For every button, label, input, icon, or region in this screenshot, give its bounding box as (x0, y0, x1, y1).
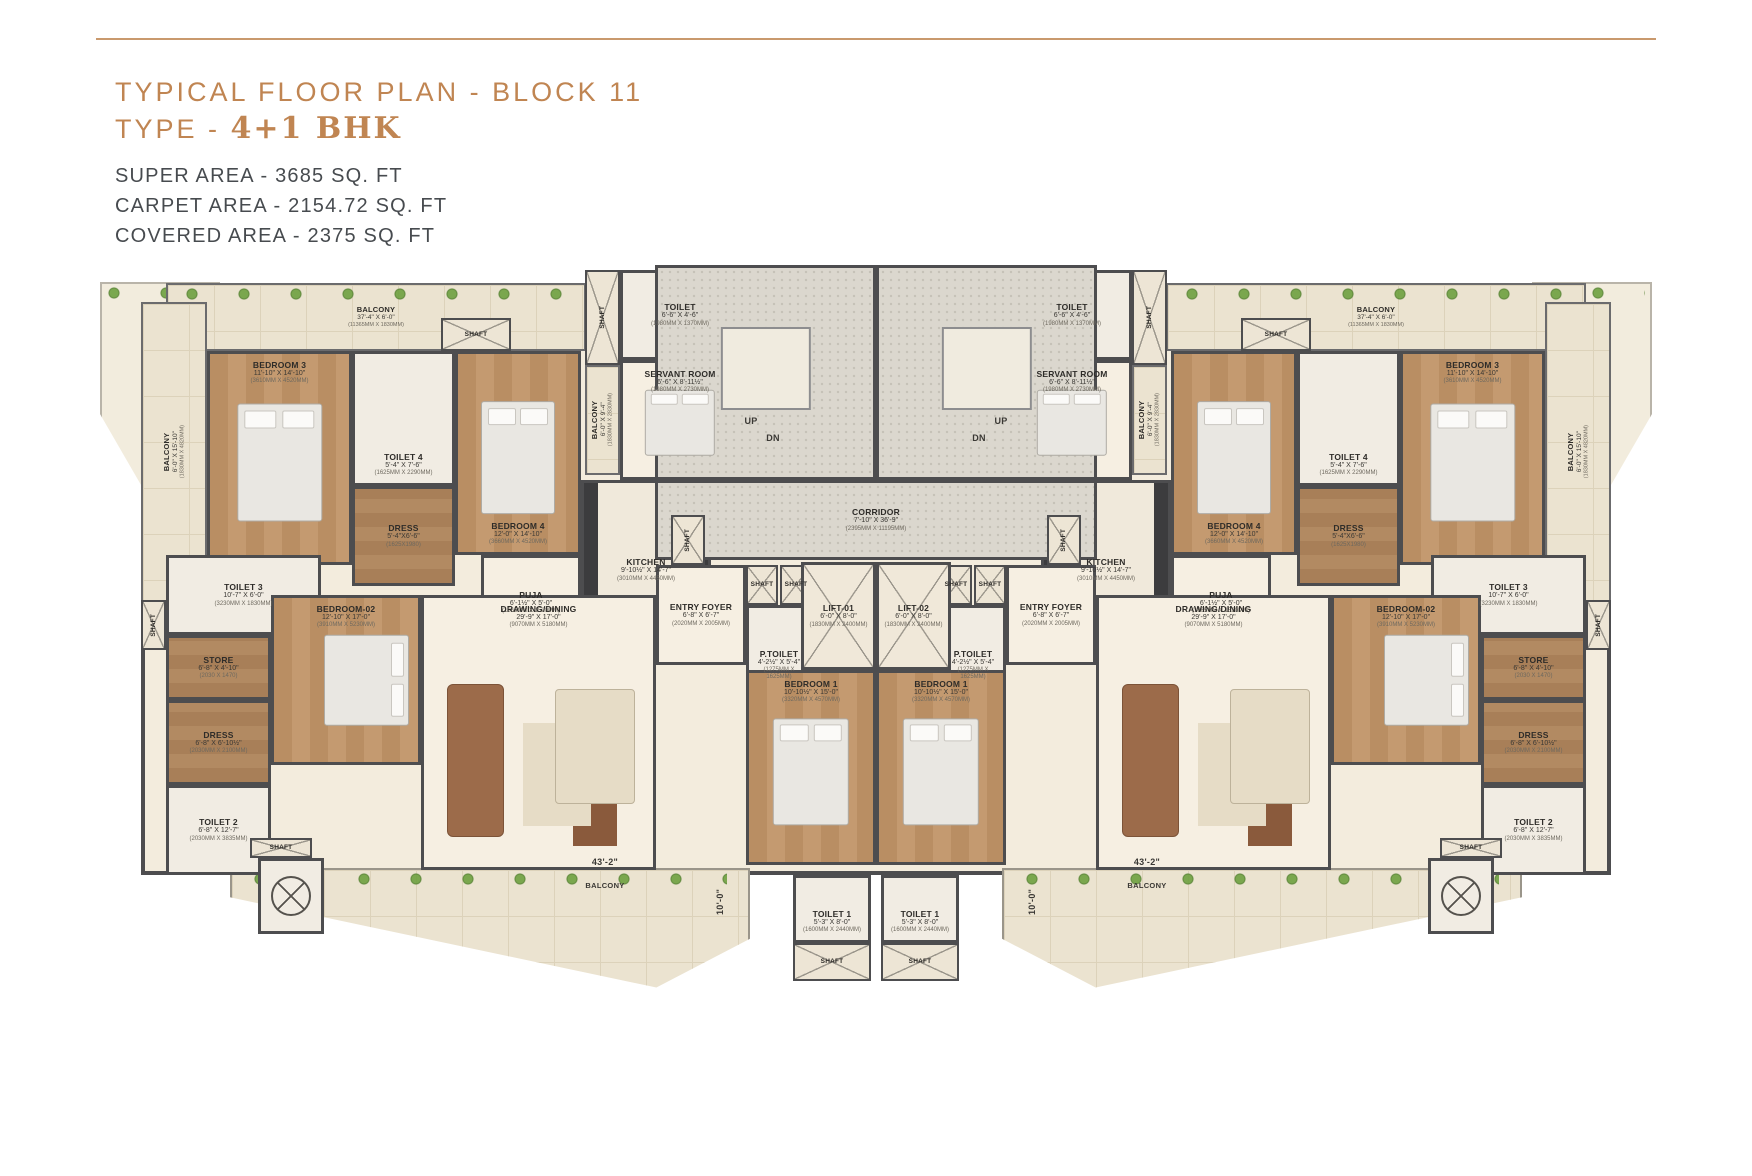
note-stair-up-left: UP (736, 414, 766, 428)
servant-shaft-label: SHAFT (597, 305, 609, 330)
washing-machine-icon (1441, 876, 1481, 916)
room-shaft-washer-left: SHAFT (250, 838, 312, 858)
furniture-bedv-icon (1037, 390, 1107, 456)
note-dim-10-0-left: 10'-0" (712, 872, 728, 932)
bedroom-02-label: BEDROOM-0212'-10" X 17'-0"(3910MM X 5230… (1375, 598, 1438, 630)
room-shaft-top-right: SHAFT (1241, 318, 1311, 351)
room-shaft-washer-right: SHAFT (1440, 838, 1502, 858)
room-store-left: STORE6'-8" X 4'-10"(2030 X 1470) (166, 635, 271, 700)
bedroom-4-label: BEDROOM 412'-0" X 14'-10"(3660MM X 4520M… (1203, 520, 1265, 552)
bedroom-1-label: BEDROOM 110'-10½" X 15'-0"(3320MM X 4570… (780, 673, 842, 705)
note-dim-43-2-left: 43'-2" (560, 855, 650, 869)
shaft-washer-label: SHAFT (268, 843, 295, 853)
room-shaft-f1-left: SHAFT (746, 565, 778, 605)
note-stair-up-right: UP (986, 414, 1016, 428)
floor-plan-canvas: BALCONY37'-4" X 6'-0"(11365MM X 1830MM)B… (0, 0, 1752, 1176)
floor-plan-page: TYPICAL FLOOR PLAN - BLOCK 11 TYPE - 4+1… (0, 0, 1752, 1176)
toilet-1-label: TOILET 15'-3" X 8'-0"(1600MM X 2440MM) (889, 908, 951, 940)
washing-machine-icon (271, 876, 311, 916)
toilet-1-label: TOILET 15'-3" X 8'-0"(1600MM X 2440MM) (801, 908, 863, 940)
room-bedroom-4-left: BEDROOM 412'-0" X 14'-10"(3660MM X 4520M… (455, 351, 581, 555)
toilet-2-label: TOILET 26'-8" X 12'-7"(2030MM X 3835MM) (1502, 816, 1564, 843)
furniture-bedv-icon (1197, 401, 1271, 514)
servant-room-label: SERVANT ROOM6'-6" X 8'-11½"(1980MM X 273… (1034, 363, 1109, 395)
dress-2-label: DRESS6'-8" X 6'-10½"(2030MM X 2100MM) (1502, 729, 1564, 756)
room-store-right: STORE6'-8" X 4'-10"(2030 X 1470) (1481, 635, 1586, 700)
room-servant-balcony-right: BALCONY6'-0" X 9'-4"(1830MM X 2830MM) (1132, 365, 1167, 475)
room-shaft-side-left: SHAFT (141, 600, 166, 650)
room-lift-02: LIFT-026'-0" X 8'-0"(1830MM X 2400MM) (876, 562, 951, 670)
room-servant-balcony-left: BALCONY6'-0" X 9'-4"(1830MM X 2830MM) (585, 365, 620, 475)
room-dress-4-right: DRESS5'-4"X6'-6"(1625X1980) (1297, 486, 1400, 586)
shaft-f1-label: SHAFT (977, 580, 1004, 590)
shaft-corridor-label: SHAFT (682, 528, 694, 553)
room-toilet-1-right: TOILET 15'-3" X 8'-0"(1600MM X 2440MM) (881, 875, 959, 943)
room-lift-01: LIFT-016'-0" X 8'-0"(1830MM X 2400MM) (801, 562, 876, 670)
servant-toilet-label: TOILET6'-6" X 4'-6"(1980MM X 1370MM) (1041, 301, 1103, 328)
entry-foyer-label: ENTRY FOYER6'-8" X 6'-7"(2020MM X 2005MM… (1018, 601, 1084, 628)
plants-icon (185, 287, 568, 301)
furniture-bedv-icon (237, 404, 322, 522)
room-balcony-top-left: BALCONY37'-4" X 6'-0"(11365MM X 1830MM) (166, 283, 586, 351)
stair-well (720, 327, 810, 411)
bedroom-1-label: BEDROOM 110'-10½" X 15'-0"(3320MM X 4570… (910, 673, 972, 705)
room-bedroom-3-right: BEDROOM 311'-10" X 14'-10"(3610MM X 4520… (1400, 351, 1545, 565)
room-drawing-dining-left: DRAWING/DINING29'-9" X 17'-0"(9070MM X 5… (421, 595, 656, 870)
room-servant-shaft-right: SHAFT (1132, 270, 1167, 365)
shaft-f2-label: SHAFT (943, 580, 970, 590)
dress-4-label: DRESS5'-4"X6'-6"(1625X1980) (1329, 522, 1368, 549)
drawing-dining-label: DRAWING/DINING29'-9" X 17'-0"(9070MM X 5… (499, 598, 579, 630)
room-toilet-2-right: TOILET 26'-8" X 12'-7"(2030MM X 3835MM) (1481, 785, 1586, 875)
room-drawing-dining-right: DRAWING/DINING29'-9" X 17'-0"(9070MM X 5… (1096, 595, 1331, 870)
room-corridor: CORRIDOR7'-10" X 36'-9"(2395MM X 11195MM… (655, 480, 1097, 560)
dress-2-label: DRESS6'-8" X 6'-10½"(2030MM X 2100MM) (187, 729, 249, 756)
furniture-bedh-icon (324, 635, 410, 726)
kitchen-label: KITCHEN9'-10½" X 14'-7"(3010MM X 4450MM) (1075, 556, 1137, 583)
room-toilet-4-right: TOILET 45'-4" X 7'-6"(1625MM X 2290MM) (1297, 351, 1400, 486)
furniture-bedv-icon (773, 718, 849, 826)
room-bedroom-1-right: BEDROOM 110'-10½" X 15'-0"(3320MM X 4570… (876, 670, 1006, 865)
furniture-living-icon (424, 598, 653, 867)
note-dim-43-2-right: 43'-2" (1102, 855, 1192, 869)
note-stair-dn-right: DN (964, 431, 994, 445)
shaft-top-label: SHAFT (463, 330, 490, 340)
room-dress-2-left: DRESS6'-8" X 6'-10½"(2030MM X 2100MM) (166, 700, 271, 785)
room-shaft-bottom-left: SHAFT (793, 943, 871, 981)
lift-02-label: LIFT-026'-0" X 8'-0"(1830MM X 2400MM) (882, 602, 944, 629)
note-balcony-bottom-label-left: BALCONY (560, 879, 650, 891)
drawing-dining-label: DRAWING/DINING29'-9" X 17'-0"(9070MM X 5… (1174, 598, 1254, 630)
servant-balcony-label: BALCONY6'-0" X 9'-4"(1830MM X 2830MM) (589, 392, 616, 447)
kitchen-label: KITCHEN9'-10½" X 14'-7"(3010MM X 4450MM) (615, 556, 677, 583)
shaft-corridor-label: SHAFT (1058, 528, 1070, 553)
shaft-bottom-label: SHAFT (819, 957, 846, 967)
room-toilet-2-left: TOILET 26'-8" X 12'-7"(2030MM X 3835MM) (166, 785, 271, 875)
bedroom-3-label: BEDROOM 311'-10" X 14'-10"(3610MM X 4520… (1441, 354, 1503, 386)
toilet-3-label: TOILET 310'-7" X 6'-0"(3230MM X 1830MM) (1477, 581, 1539, 608)
room-toilet-1-left: TOILET 15'-3" X 8'-0"(1600MM X 2440MM) (793, 875, 871, 943)
toilet-3-label: TOILET 310'-7" X 6'-0"(3230MM X 1830MM) (212, 581, 274, 608)
plants-icon (1185, 287, 1568, 301)
shaft-side-label: SHAFT (1593, 613, 1605, 638)
balcony-top-label: BALCONY37'-4" X 6'-0"(11365MM X 1830MM) (346, 305, 406, 330)
bedroom-3-label: BEDROOM 311'-10" X 14'-10"(3610MM X 4520… (248, 354, 310, 386)
furniture-bedv-icon (645, 390, 715, 456)
shaft-f1-label: SHAFT (749, 580, 776, 590)
room-balcony-top-right: BALCONY37'-4" X 6'-0"(11365MM X 1830MM) (1166, 283, 1586, 351)
room-bedroom-3-left: BEDROOM 311'-10" X 14'-10"(3610MM X 4520… (207, 351, 352, 565)
room-toilet-4-left: TOILET 45'-4" X 7'-6"(1625MM X 2290MM) (352, 351, 455, 486)
lift-01-label: LIFT-016'-0" X 8'-0"(1830MM X 2400MM) (807, 602, 869, 629)
servant-shaft-label: SHAFT (1144, 305, 1156, 330)
shaft-side-label: SHAFT (148, 613, 160, 638)
room-washer-right (1428, 858, 1494, 934)
room-bedroom-02-left: BEDROOM-0212'-10" X 17'-0"(3910MM X 5230… (271, 595, 421, 765)
room-shaft-f1-right: SHAFT (974, 565, 1006, 605)
furniture-bedv-icon (1430, 404, 1515, 522)
servant-room-label: SERVANT ROOM6'-6" X 8'-11½"(1980MM X 273… (642, 363, 717, 395)
shaft-washer-label: SHAFT (1458, 843, 1485, 853)
room-bedroom-02-right: BEDROOM-0212'-10" X 17'-0"(3910MM X 5230… (1331, 595, 1481, 765)
stair-well (941, 327, 1031, 411)
balcony-side-label: BALCONY6'-0" X 15'-10"(1830MM X 4820MM) (1565, 424, 1592, 479)
shaft-top-label: SHAFT (1263, 330, 1290, 340)
room-shaft-bottom-right: SHAFT (881, 943, 959, 981)
shaft-f2-label: SHAFT (783, 580, 810, 590)
store-label: STORE6'-8" X 4'-10"(2030 X 1470) (1511, 654, 1555, 681)
toilet-2-label: TOILET 26'-8" X 12'-7"(2030MM X 3835MM) (187, 816, 249, 843)
furniture-bedv-icon (903, 718, 979, 826)
room-shaft-top-left: SHAFT (441, 318, 511, 351)
furniture-living-icon (1099, 598, 1328, 867)
room-bedroom-1-left: BEDROOM 110'-10½" X 15'-0"(3320MM X 4570… (746, 670, 876, 865)
servant-toilet-label: TOILET6'-6" X 4'-6"(1980MM X 1370MM) (649, 301, 711, 328)
furniture-bedv-icon (481, 401, 555, 514)
corridor-label: CORRIDOR7'-10" X 36'-9"(2395MM X 11195MM… (844, 506, 908, 533)
toilet-4-label: TOILET 45'-4" X 7'-6"(1625MM X 2290MM) (1317, 451, 1379, 483)
note-balcony-bottom-label-right: BALCONY (1102, 879, 1192, 891)
entry-foyer-label: ENTRY FOYER6'-8" X 6'-7"(2020MM X 2005MM… (668, 601, 734, 628)
furniture-bedh-icon (1384, 635, 1470, 726)
servant-balcony-label: BALCONY6'-0" X 9'-4"(1830MM X 2830MM) (1136, 392, 1163, 447)
note-stair-dn-left: DN (758, 431, 788, 445)
bedroom-02-label: BEDROOM-0212'-10" X 17'-0"(3910MM X 5230… (315, 598, 378, 630)
room-shaft-side-right: SHAFT (1586, 600, 1611, 650)
shaft-bottom-label: SHAFT (907, 957, 934, 967)
toilet-4-label: TOILET 45'-4" X 7'-6"(1625MM X 2290MM) (372, 451, 434, 483)
room-dress-2-right: DRESS6'-8" X 6'-10½"(2030MM X 2100MM) (1481, 700, 1586, 785)
room-bedroom-4-right: BEDROOM 412'-0" X 14'-10"(3660MM X 4520M… (1171, 351, 1297, 555)
dress-4-label: DRESS5'-4"X6'-6"(1625X1980) (384, 522, 423, 549)
room-washer-left (258, 858, 324, 934)
balcony-side-label: BALCONY6'-0" X 15'-10"(1830MM X 4820MM) (161, 424, 188, 479)
balcony-top-label: BALCONY37'-4" X 6'-0"(11365MM X 1830MM) (1346, 305, 1406, 330)
note-dim-10-0-right: 10'-0" (1024, 872, 1040, 932)
store-label: STORE6'-8" X 4'-10"(2030 X 1470) (196, 654, 240, 681)
room-servant-shaft-left: SHAFT (585, 270, 620, 365)
bedroom-4-label: BEDROOM 412'-0" X 14'-10"(3660MM X 4520M… (487, 520, 549, 552)
room-dress-4-left: DRESS5'-4"X6'-6"(1625X1980) (352, 486, 455, 586)
